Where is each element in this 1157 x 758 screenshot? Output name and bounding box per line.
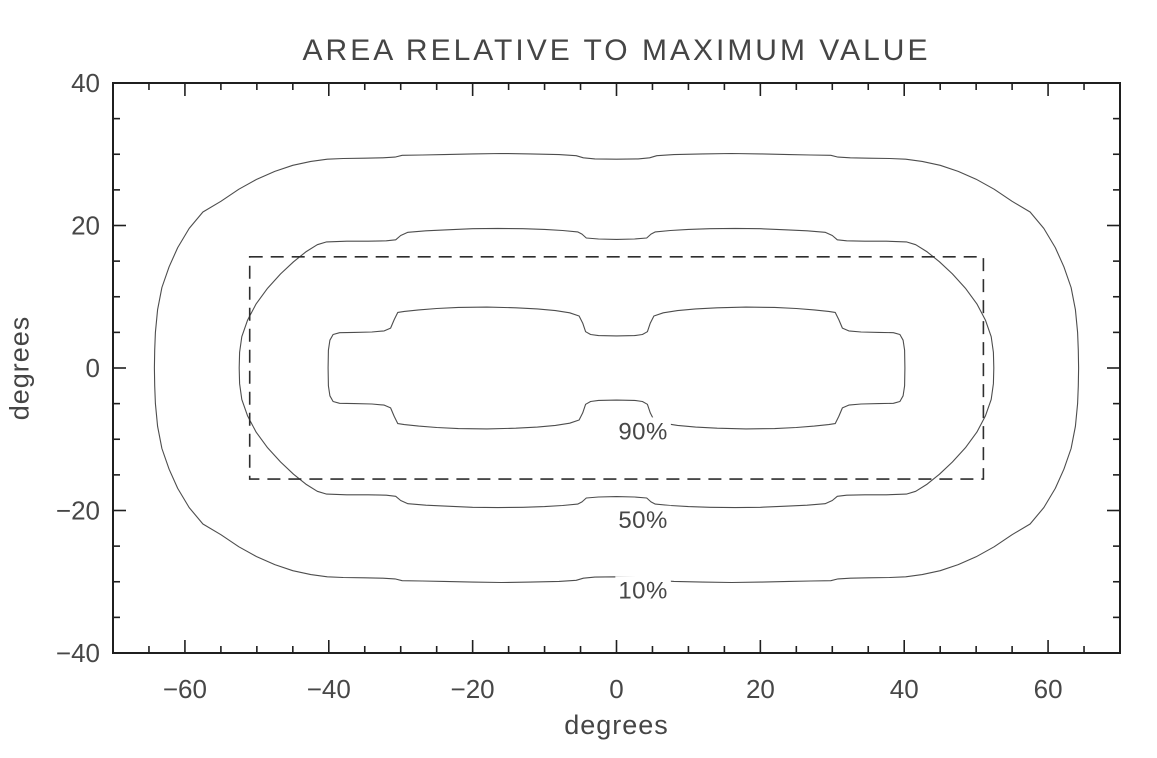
y-tick-label: 0: [86, 353, 100, 383]
contour-figure: AREA RELATIVE TO MAXIMUM VALUE −60−40−20…: [0, 0, 1157, 758]
x-tick-label: −20: [451, 674, 495, 704]
x-tick-label: 0: [609, 674, 623, 704]
y-tick-label: −40: [56, 638, 100, 668]
contour-plot-canvas: −60−40−200204060−40−200204090%50%10%: [0, 0, 1157, 758]
x-tick-label: 20: [746, 674, 775, 704]
y-axis-label: degrees: [5, 316, 36, 421]
contour-label-10pct: 10%: [618, 577, 668, 604]
y-tick-label: −20: [56, 496, 100, 526]
x-tick-label: 40: [890, 674, 919, 704]
y-tick-label: 40: [71, 68, 100, 98]
x-tick-label: −40: [307, 674, 351, 704]
x-tick-label: −60: [163, 674, 207, 704]
axis-box: [113, 83, 1120, 653]
y-tick-label: 20: [71, 211, 100, 241]
contour-line-50pct: [239, 228, 994, 507]
x-axis-label: degrees: [113, 710, 1120, 741]
x-tick-label: 60: [1034, 674, 1063, 704]
contour-label-50pct: 50%: [618, 507, 668, 534]
contour-line-90pct: [328, 307, 905, 429]
contour-label-90pct: 90%: [618, 418, 668, 445]
